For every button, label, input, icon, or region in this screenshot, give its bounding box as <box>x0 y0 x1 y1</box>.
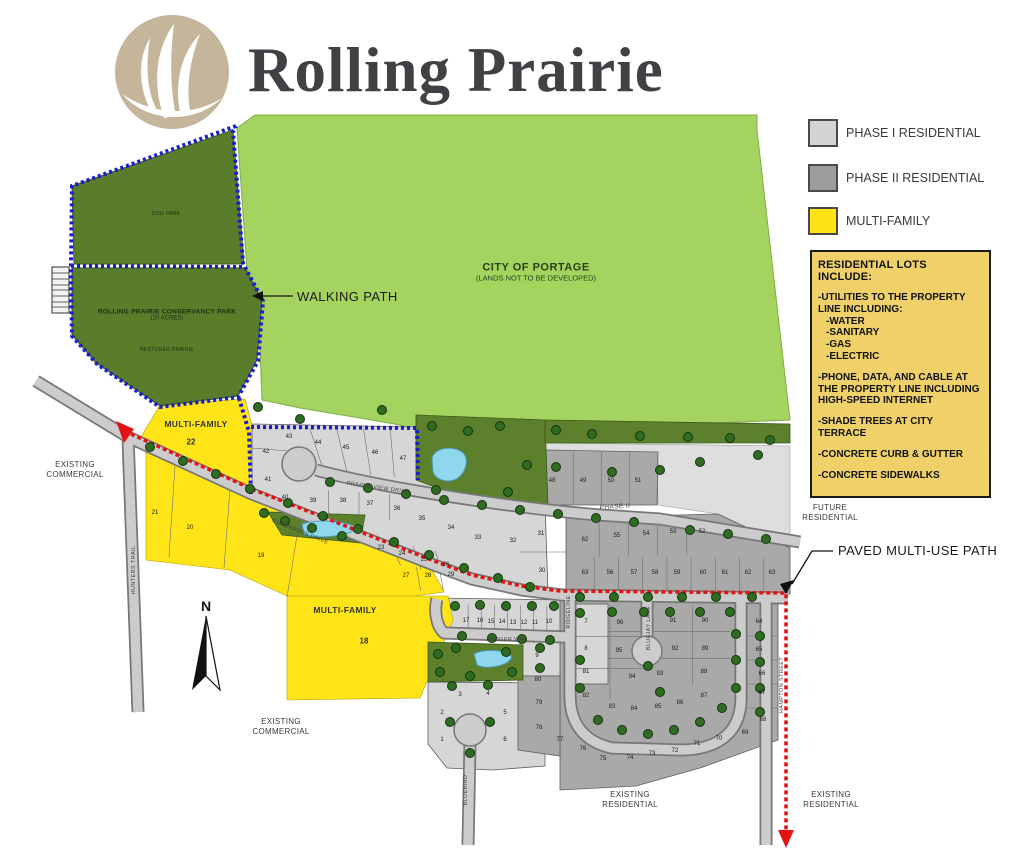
tree-icon <box>308 524 317 533</box>
tree-icon <box>608 608 617 617</box>
red-arrow-south <box>778 830 794 848</box>
tree-icon <box>440 496 449 505</box>
tree-icon <box>644 662 653 671</box>
tree-icon <box>636 432 645 441</box>
tree-icon <box>546 636 555 645</box>
tree-icon <box>402 490 411 499</box>
tree-icon <box>434 650 443 659</box>
tree-icon <box>146 443 155 452</box>
tree-icon <box>766 436 775 445</box>
tree-icon <box>732 630 741 639</box>
tree-icon <box>528 602 537 611</box>
tree-icon <box>696 608 705 617</box>
tree-icon <box>644 593 653 602</box>
info-line: -PHONE, DATA, AND CABLE AT THE PROPERTY … <box>818 372 983 407</box>
city-of-portage-area <box>237 115 790 432</box>
site-plan-page: Rolling Prairie <box>0 0 1024 854</box>
legend-swatch-multifamily <box>808 207 838 235</box>
tree-icon <box>732 656 741 665</box>
tree-icon <box>588 430 597 439</box>
tree-icon <box>712 593 721 602</box>
hatched-structure <box>52 267 69 313</box>
tree-icon <box>179 457 188 466</box>
tree-icon <box>478 501 487 510</box>
legend-item-phase1: PHASE I RESIDENTIAL <box>808 118 981 148</box>
legend-item-multifamily: MULTI-FAMILY <box>808 206 930 236</box>
tree-icon <box>436 668 445 677</box>
tree-icon <box>756 708 765 717</box>
tree-icon <box>486 718 495 727</box>
tree-icon <box>684 433 693 442</box>
tree-icon <box>670 726 679 735</box>
tree-icon <box>576 593 585 602</box>
tree-icon <box>696 458 705 467</box>
tree-icon <box>656 466 665 475</box>
tree-icon <box>726 608 735 617</box>
tree-icon <box>458 632 467 641</box>
info-line: -SHADE TREES AT CITY TERRACE <box>818 416 983 440</box>
tree-icon <box>576 609 585 618</box>
tree-icon <box>425 551 434 560</box>
tree-icon <box>494 574 503 583</box>
tree-icon <box>502 648 511 657</box>
tree-icon <box>464 427 473 436</box>
tree-icon <box>466 672 475 681</box>
tree-icon <box>378 406 387 415</box>
cul-de-sac-bluebird <box>454 714 486 746</box>
legend-label: MULTI-FAMILY <box>846 214 930 228</box>
tree-icon <box>496 422 505 431</box>
tree-icon <box>508 668 517 677</box>
tree-icon <box>246 485 255 494</box>
tree-icon <box>576 656 585 665</box>
tree-icon <box>686 526 695 535</box>
tree-icon <box>678 593 687 602</box>
legend-label: PHASE I RESIDENTIAL <box>846 126 981 140</box>
tree-icon <box>518 635 527 644</box>
tree-icon <box>488 634 497 643</box>
legend-swatch-phase1 <box>808 119 838 147</box>
tree-icon <box>536 644 545 653</box>
tree-icon <box>696 718 705 727</box>
tree-icon <box>592 514 601 523</box>
tree-icon <box>281 517 290 526</box>
tree-icon <box>446 718 455 727</box>
tree-icon <box>466 749 475 758</box>
tree-icon <box>732 684 741 693</box>
legend-label: PHASE II RESIDENTIAL <box>846 171 984 185</box>
tree-icon <box>460 564 469 573</box>
tree-icon <box>364 484 373 493</box>
tree-icon <box>756 632 765 641</box>
tree-icon <box>526 583 535 592</box>
tree-icon <box>576 684 585 693</box>
tree-icon <box>390 538 399 547</box>
tree-icon <box>319 512 328 521</box>
tree-icon <box>448 682 457 691</box>
info-subline: -SANITARY <box>818 327 983 339</box>
cul-de-sac-prairie-view <box>282 447 316 481</box>
legend-item-phase2: PHASE II RESIDENTIAL <box>808 163 984 193</box>
tree-icon <box>644 730 653 739</box>
phase2-west-column <box>518 676 560 756</box>
residential-info-box: RESIDENTIAL LOTS INCLUDE: -UTILITIES TO … <box>810 250 991 498</box>
tree-icon <box>640 608 649 617</box>
tree-icon <box>726 434 735 443</box>
tree-icon <box>718 704 727 713</box>
north-arrow <box>192 616 220 690</box>
tree-icon <box>296 415 305 424</box>
info-line: -CONCRETE SIDEWALKS <box>818 470 983 482</box>
tree-icon <box>502 602 511 611</box>
tree-icon <box>552 463 561 472</box>
tree-icon <box>748 593 757 602</box>
tree-icon <box>476 601 485 610</box>
info-subline: -WATER <box>818 316 983 328</box>
info-box-content: -UTILITIES TO THE PROPERTY LINE INCLUDIN… <box>818 292 983 481</box>
tree-icon <box>618 726 627 735</box>
tree-icon <box>523 461 532 470</box>
conservancy-park-area <box>72 268 262 406</box>
tree-icon <box>284 499 293 508</box>
info-subline: -ELECTRIC <box>818 351 983 363</box>
tree-icon <box>594 716 603 725</box>
info-subline: -GAS <box>818 339 983 351</box>
tree-icon <box>452 644 461 653</box>
tree-icon <box>630 518 639 527</box>
tree-icon <box>428 422 437 431</box>
tree-icon <box>608 468 617 477</box>
tree-icon <box>484 681 493 690</box>
tree-icon <box>756 658 765 667</box>
info-line: -CONCRETE CURB & GUTTER <box>818 449 983 461</box>
tree-icon <box>260 509 269 518</box>
info-line: -UTILITIES TO THE PROPERTY LINE INCLUDIN… <box>818 292 983 363</box>
info-box-title: RESIDENTIAL LOTS INCLUDE: <box>818 259 983 283</box>
tree-icon <box>554 510 563 519</box>
tree-icon <box>754 451 763 460</box>
legend-swatch-phase2 <box>808 164 838 192</box>
tree-icon <box>552 426 561 435</box>
tree-icon <box>451 602 460 611</box>
tree-icon <box>656 688 665 697</box>
tree-icon <box>504 488 513 497</box>
tree-icon <box>326 478 335 487</box>
tree-icon <box>550 602 559 611</box>
tree-icon <box>536 664 545 673</box>
tree-icon <box>254 403 263 412</box>
tree-icon <box>724 530 733 539</box>
tree-icon <box>756 684 765 693</box>
tree-icon <box>516 506 525 515</box>
tree-icon <box>212 470 221 479</box>
tree-icon <box>338 532 347 541</box>
tree-icon <box>432 486 441 495</box>
dog-park-area <box>72 130 244 264</box>
tree-icon <box>610 593 619 602</box>
tree-icon <box>354 525 363 534</box>
tree-icon <box>762 535 771 544</box>
park-strip-east <box>545 420 790 443</box>
tree-icon <box>666 608 675 617</box>
